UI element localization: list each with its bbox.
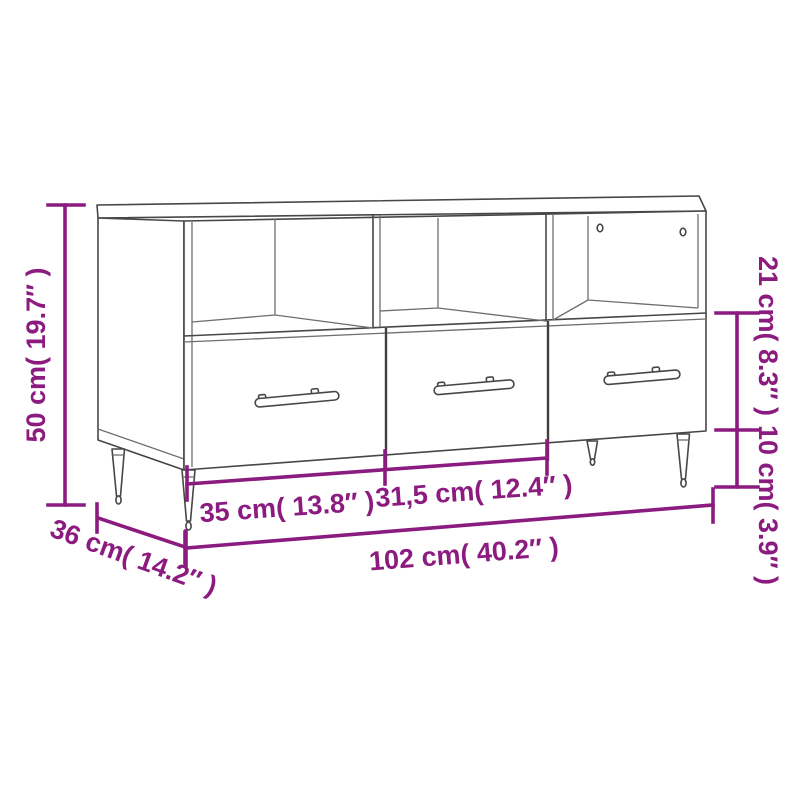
leg-front-right [677,434,690,487]
leg-back-left [112,449,125,504]
cabinet-left-side-panel [98,218,184,470]
dim-leg-height-label: 10 cm( 3.9″ ) [753,425,783,585]
cabinet-front-face [184,211,706,470]
dim-left-drawer-width-label: 35 cm( 13.8″ ) [199,486,376,528]
dim-total-width-label: 102 cm( 40.2″ ) [368,532,560,577]
leg-back-right [587,441,598,465]
dim-height-label: 50 cm( 19.7″ ) [21,267,51,442]
dim-drawer-height-label: 21 cm( 8.3″ ) [753,256,783,416]
dim-middle-drawer-width-label: 31,5 cm( 12.4″ ) [374,469,573,513]
dimension-diagram-page: 50 cm( 19.7″ ) 21 cm( 8.3″ ) 10 cm( 3.9″… [0,0,800,800]
dim-right-line [716,313,758,487]
tv-cabinet-dimension-diagram: 50 cm( 19.7″ ) 21 cm( 8.3″ ) 10 cm( 3.9″… [0,0,800,800]
dim-depth-label: 36 cm( 14.2″ ) [46,513,221,601]
dim-height-line [48,205,84,505]
